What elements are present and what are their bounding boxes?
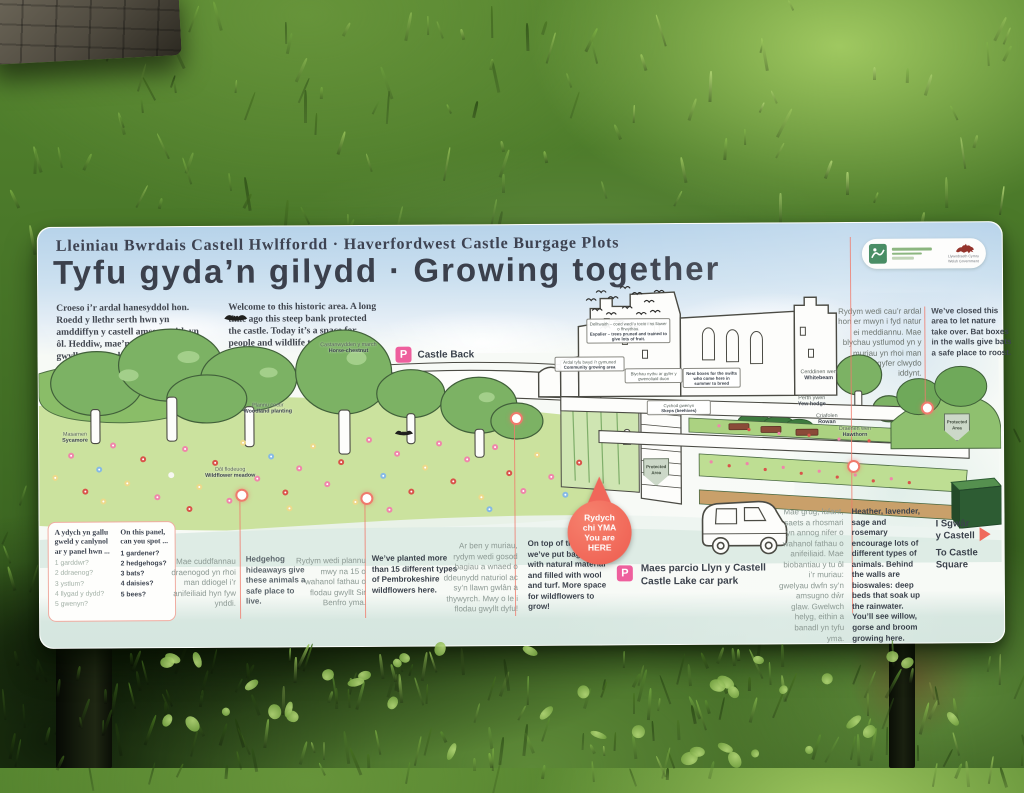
foreground-grass — [0, 0, 1024, 768]
